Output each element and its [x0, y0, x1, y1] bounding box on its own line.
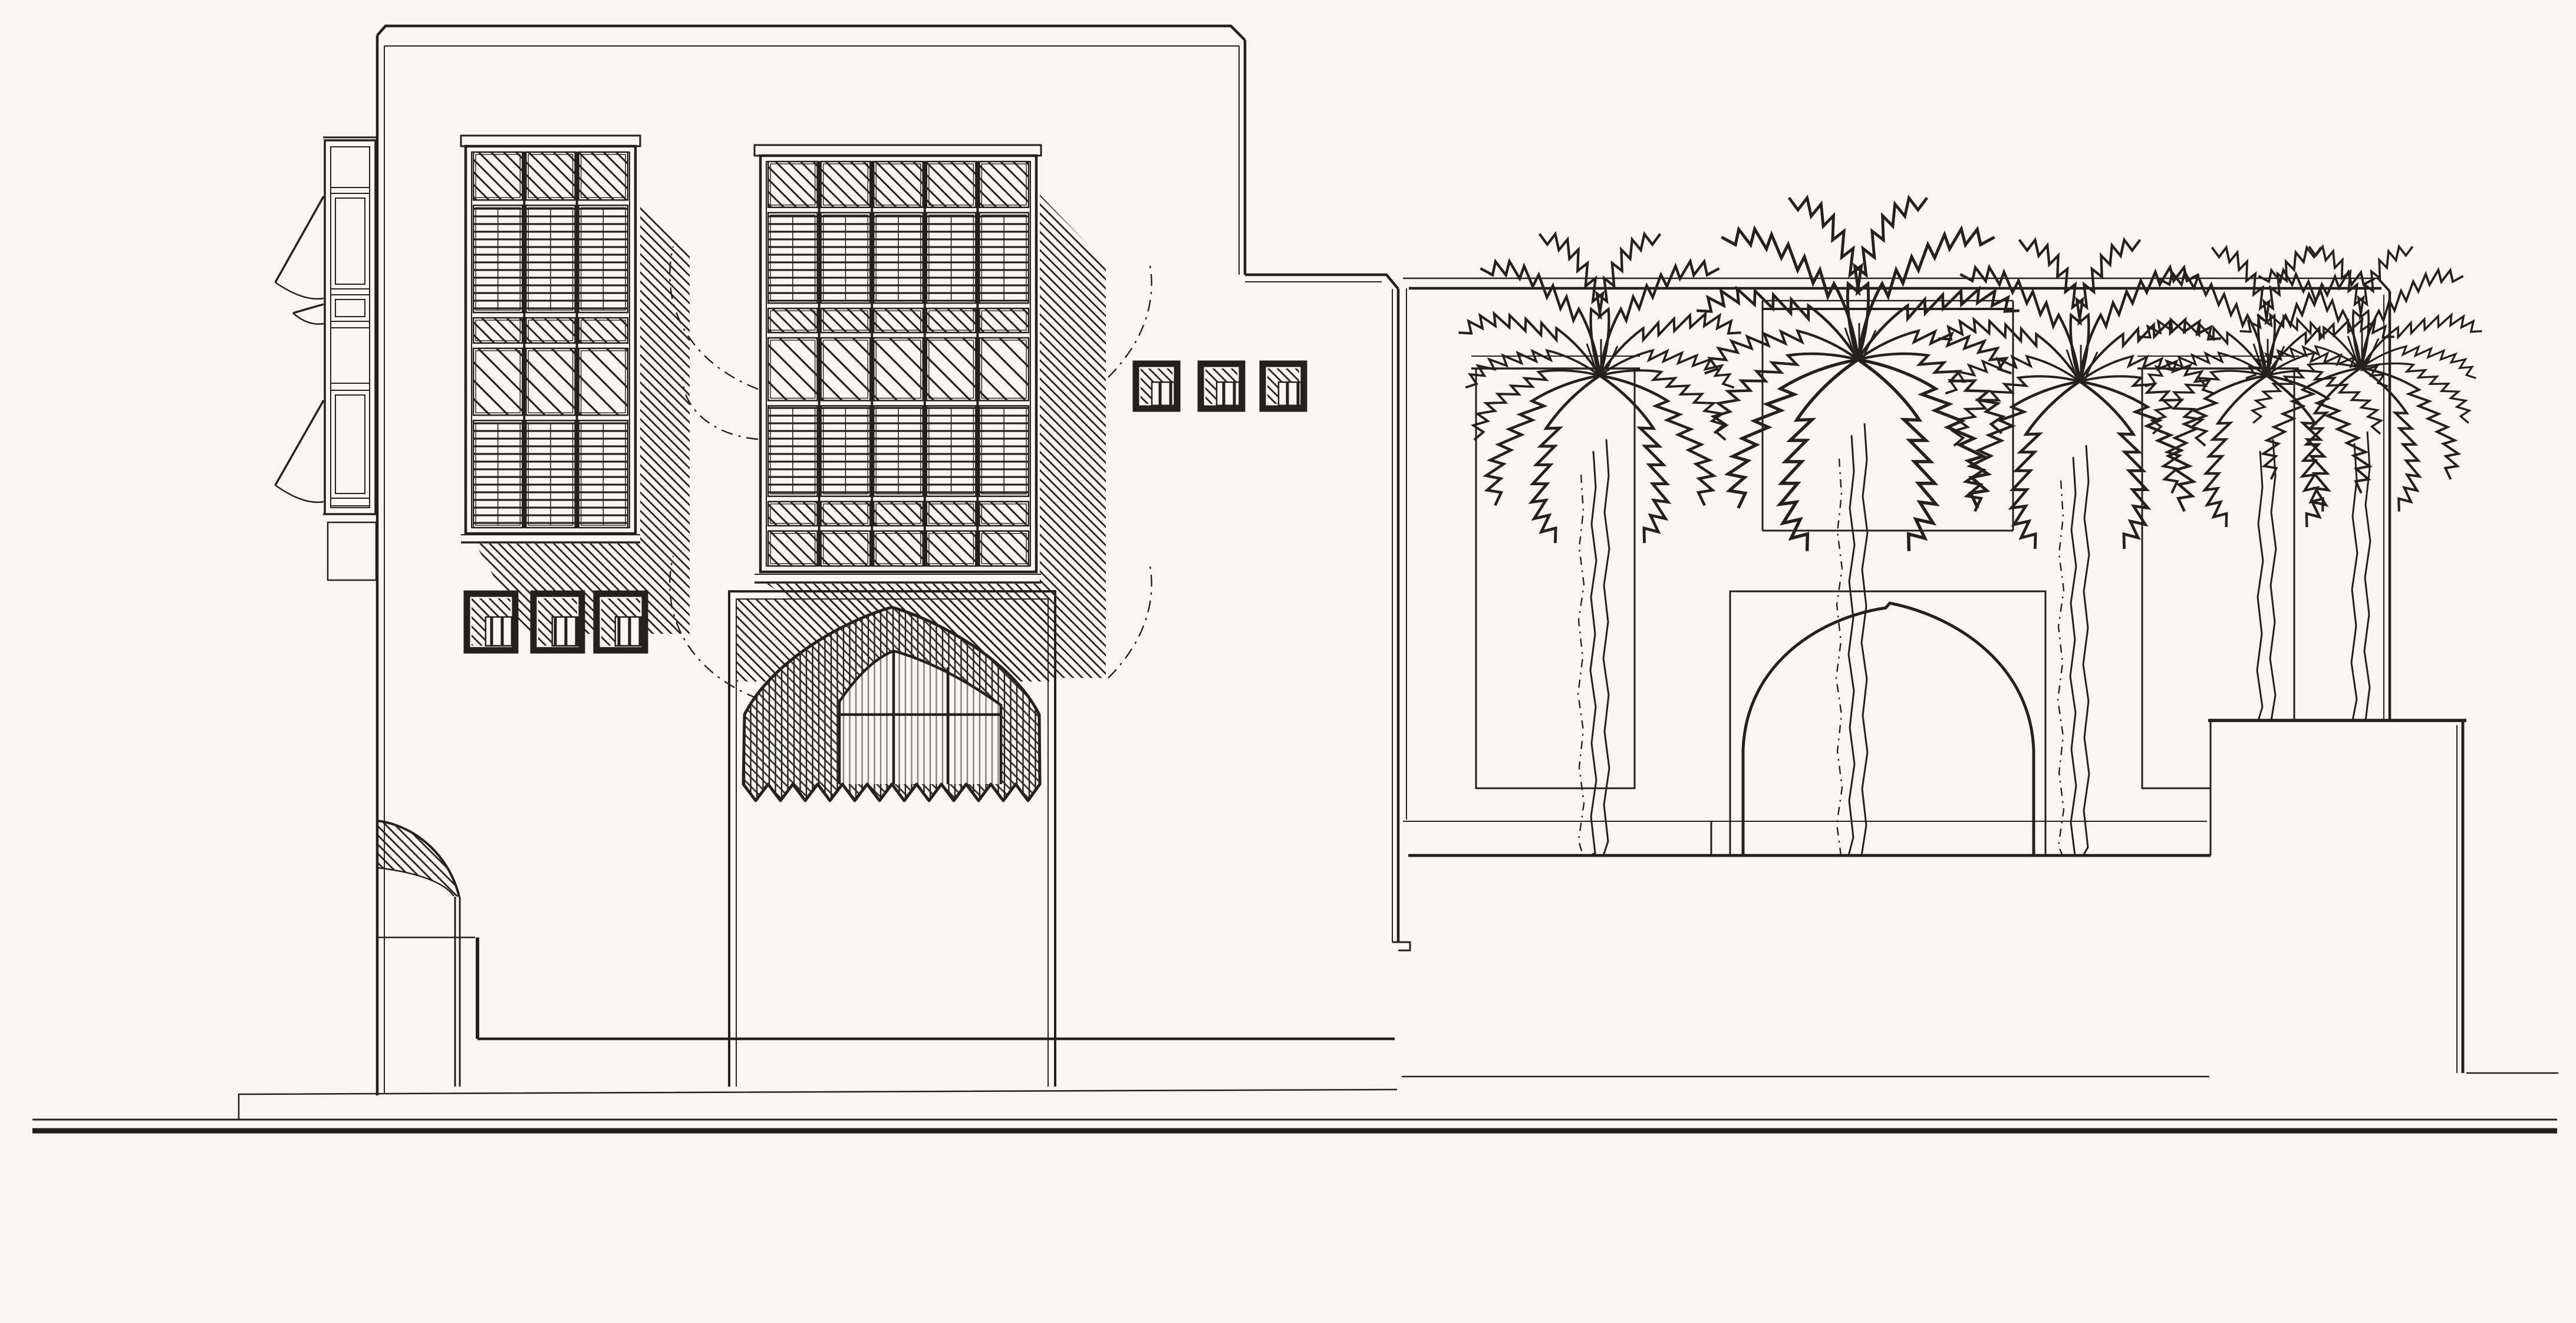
- palm-frond: [2045, 371, 2179, 549]
- palm-frond: [1981, 371, 2114, 549]
- screen-cell-lat: [579, 318, 628, 343]
- shade-fin-top-curve: [275, 282, 324, 299]
- screen-cell-latbig: [526, 348, 575, 415]
- gate-pointed-arch: [1743, 603, 2034, 855]
- grille-bars: [615, 617, 641, 646]
- small-grille-window: [533, 594, 582, 650]
- gate-frame: [1730, 591, 2045, 855]
- palm-frond: [1819, 347, 1971, 551]
- grille-bars: [486, 617, 512, 646]
- palm-trunk: [1849, 423, 1867, 855]
- recessed-panel-left: [1471, 356, 1640, 788]
- setback-wall-foot: [1392, 942, 1410, 950]
- screen-cell-lat: [979, 308, 1029, 333]
- elevation-drawing: [0, 0, 2576, 1323]
- screen-cell-lat: [927, 502, 976, 526]
- screen-cell-latbig: [874, 338, 923, 400]
- palm-crown: [1458, 224, 1741, 543]
- planter-face: [2211, 720, 2464, 1073]
- shade-fin-middle: [293, 304, 324, 313]
- palm-trunk-dashed: [1836, 459, 1842, 855]
- window-cap: [755, 145, 1041, 156]
- ground: [32, 1073, 2558, 1131]
- grille-bars: [1217, 382, 1239, 406]
- bay-lower-box: [328, 522, 376, 580]
- screen-cell-latbig: [768, 338, 818, 400]
- screen-cell-latbig: [473, 348, 522, 415]
- palm-trunk-dashed: [1578, 475, 1584, 855]
- palm-frond: [1565, 365, 1699, 543]
- small-grille-window: [1136, 364, 1177, 409]
- screen-cell-lat: [821, 531, 871, 566]
- shade-fin-bottom: [275, 400, 324, 485]
- grille-bars: [552, 617, 578, 646]
- porch-post: [455, 897, 460, 1087]
- shutter-swing-arc: [1108, 563, 1152, 678]
- palm-trunk: [2070, 445, 2089, 855]
- bay-shade-fins: [275, 196, 324, 502]
- screen-cell-lat: [979, 162, 1029, 208]
- shade-fin-bottom-curve: [275, 485, 324, 502]
- palm-tree: [1938, 230, 2221, 855]
- palm-frond: [1501, 365, 1635, 543]
- small-grille-window: [1201, 364, 1242, 409]
- screen-cell-lat: [927, 531, 976, 566]
- screen-cell-lat: [874, 502, 923, 526]
- screen-cell-lat: [768, 502, 818, 526]
- screen-cell-lat: [473, 318, 522, 343]
- side-porch: [377, 821, 1395, 1087]
- screen-cell-lat: [768, 162, 818, 208]
- roof-parapet: [377, 26, 1245, 40]
- screen-cell-lat: [579, 152, 628, 200]
- shutter-swing-arc: [683, 377, 758, 439]
- palm-frond: [1745, 347, 1898, 551]
- screen-cell-lat: [979, 531, 1029, 566]
- screen-cell-lat: [526, 152, 575, 200]
- screen-cell-lat: [768, 308, 818, 333]
- plinth-left: [239, 1090, 1397, 1120]
- bay-oriel: [275, 137, 377, 580]
- grille-bars: [1152, 382, 1174, 406]
- screen-cell-lat: [821, 502, 871, 526]
- courtyard-ledge: [1403, 821, 2212, 855]
- mashrabiya-window-left: [461, 136, 690, 634]
- mashrabiya-window-right: [755, 145, 1106, 678]
- window-cap: [461, 136, 640, 146]
- palm-tree: [1458, 224, 1741, 855]
- screen-cell-lat: [979, 502, 1029, 526]
- screen-cell-lat: [821, 308, 871, 333]
- screen-cell-lat: [473, 152, 522, 200]
- screen-cell-latbig: [821, 338, 871, 400]
- entrance-doorway: [729, 591, 1055, 1087]
- screen-cell-latbig: [579, 348, 628, 415]
- palm-frond: [2235, 366, 2356, 527]
- screen-cell-lat: [526, 318, 575, 343]
- screen-cell-lat: [874, 308, 923, 333]
- screen-cell-lat: [821, 162, 871, 208]
- small-grille-window: [597, 594, 645, 650]
- small-grille-window: [467, 594, 515, 650]
- small-grille-window: [1263, 364, 1304, 409]
- screen-cell-lat: [927, 162, 976, 208]
- porch-arch-hatch: [377, 821, 459, 897]
- palm-trunk: [2351, 432, 2370, 720]
- screen-cell-lat: [874, 531, 923, 566]
- palm-trunk: [1590, 439, 1609, 855]
- screen-cell-lat: [874, 162, 923, 208]
- shutter-swing-arc: [1108, 262, 1152, 377]
- palm-crown: [2239, 238, 2482, 511]
- raised-planter-block: [2208, 720, 2466, 1073]
- screen-cell-latbig: [979, 338, 1029, 400]
- scanned-drawing-sheet: [0, 0, 2576, 1323]
- palm-trunk-dashed: [2058, 481, 2064, 855]
- screen-cell-latbig: [927, 338, 976, 400]
- gate-arch: [1730, 591, 2045, 855]
- shade-fin-middle-curve: [293, 313, 324, 324]
- screen-cell-lat: [768, 531, 818, 566]
- screen-cell-lat: [927, 308, 976, 333]
- shade-fin-top: [275, 196, 324, 282]
- grille-bars: [1279, 382, 1301, 406]
- palm-trunk: [2257, 439, 2276, 720]
